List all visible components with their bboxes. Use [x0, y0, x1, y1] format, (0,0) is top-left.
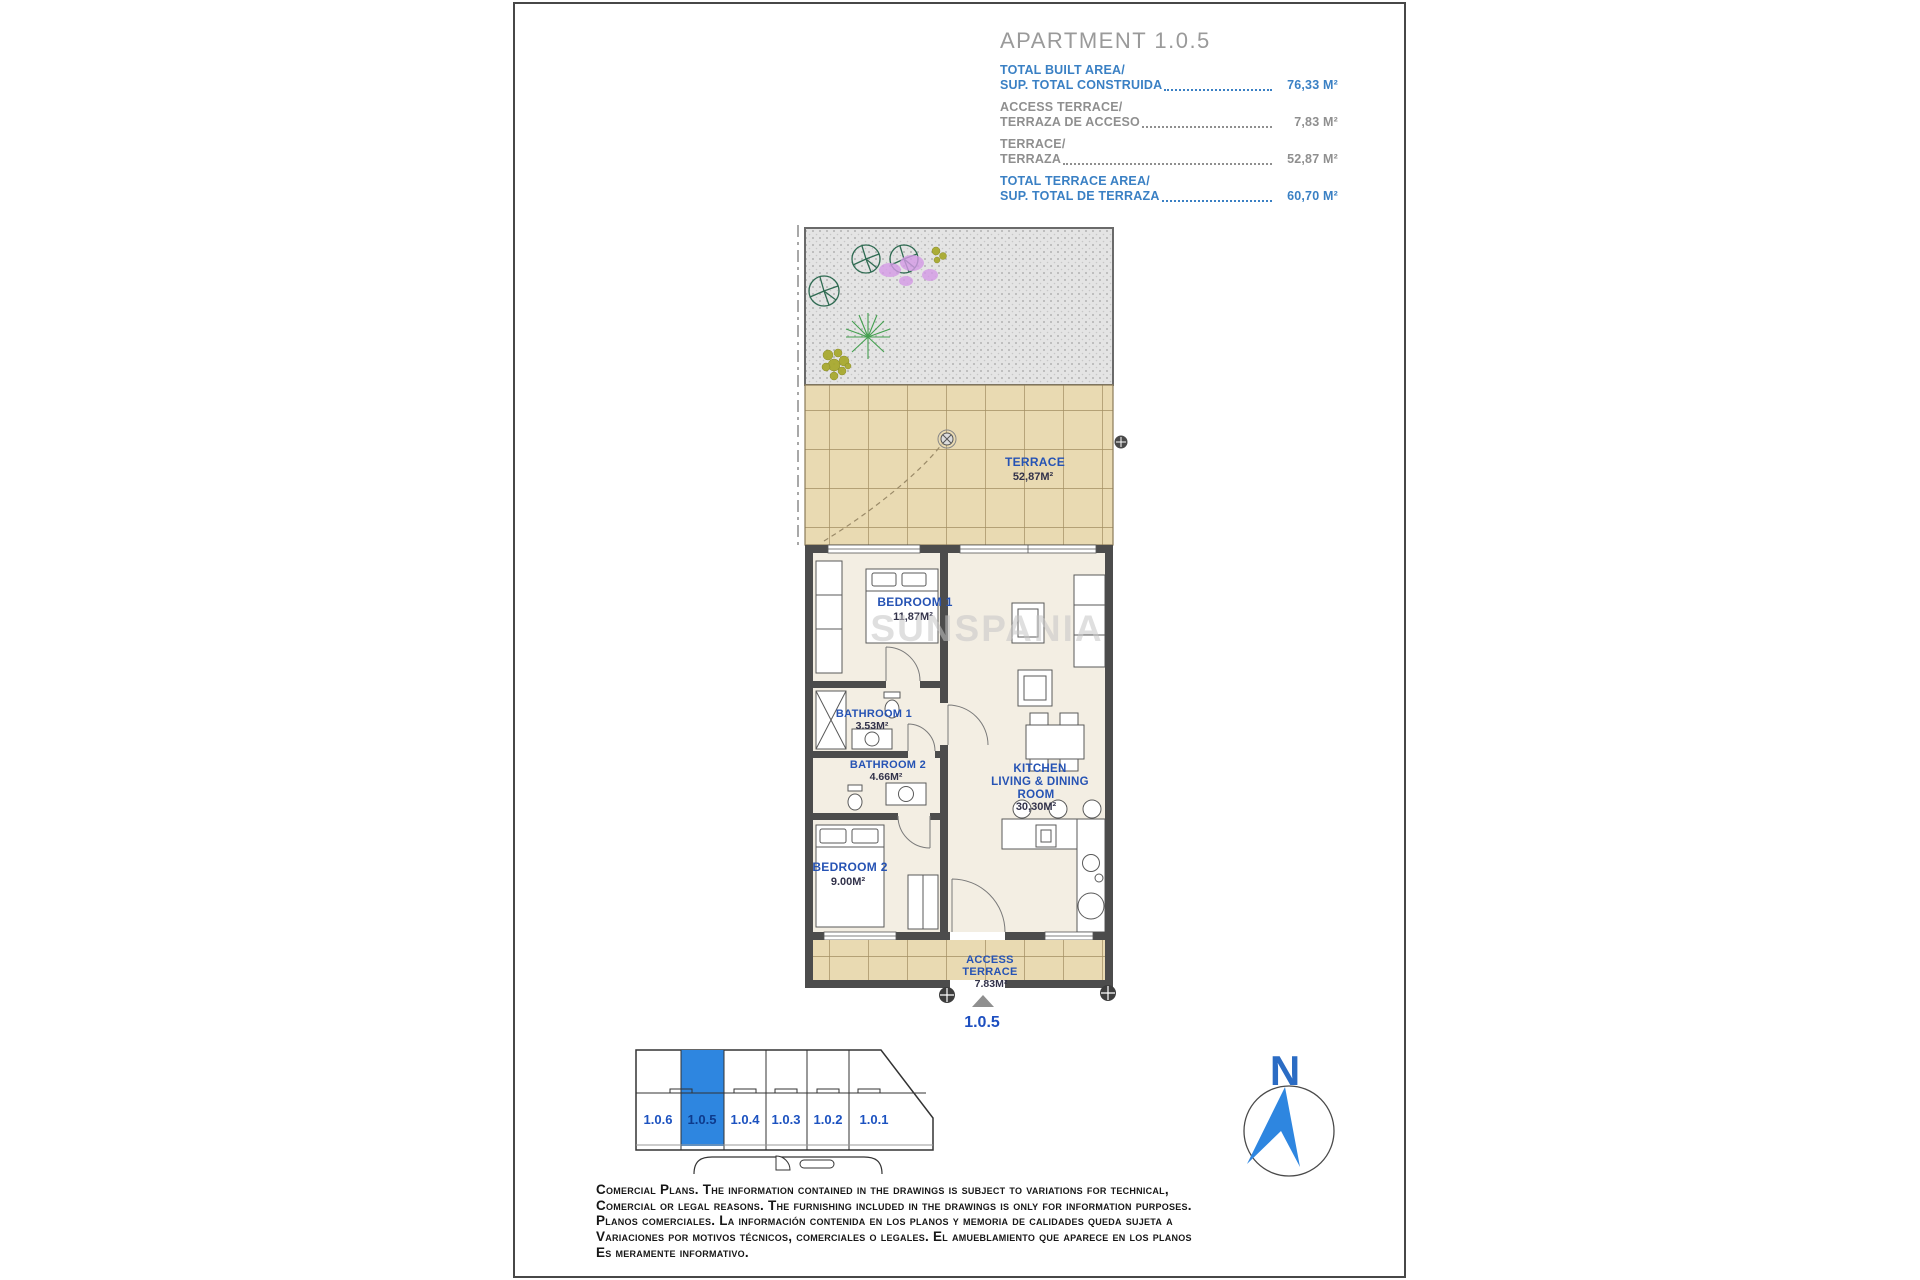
room-area-terrace: 52,87M²	[1013, 471, 1054, 483]
page-title: APARTMENT 1.0.5	[1000, 28, 1338, 54]
dotted-leader	[1063, 163, 1272, 165]
room-label-access-1: ACCESS	[966, 954, 1014, 966]
area-label-en: TOTAL BUILT AREA/	[1000, 63, 1338, 78]
closet	[908, 875, 938, 929]
room-area-access: 7.83M²	[975, 978, 1008, 990]
unit-label: 1.0.4	[731, 1112, 761, 1127]
room-label-access-2: TERRACE	[962, 966, 1017, 978]
entrance-door	[776, 1156, 790, 1170]
area-label-en: TOTAL TERRACE AREA/	[1000, 174, 1338, 189]
sink-vanity	[852, 729, 892, 749]
room-area-bathroom1: 3.53M²	[856, 720, 889, 732]
room-label-kitchen-3: ROOM	[1018, 789, 1055, 801]
room-label-kitchen-1: KITCHEN	[1013, 763, 1066, 775]
area-value: 60,70 M²	[1276, 189, 1338, 204]
area-row-total-built: TOTAL BUILT AREA/ SUP. TOTAL CONSTRUIDA …	[1000, 63, 1338, 93]
drain-icon	[1100, 985, 1116, 1001]
toilet	[848, 785, 862, 810]
unit-marker-arrow	[972, 995, 994, 1007]
area-value: 52,87 M²	[1276, 152, 1338, 167]
area-row-terrace: TERRACE/ TERRAZA 52,87 M²	[1000, 137, 1338, 167]
garden-area	[805, 228, 1113, 385]
north-label: N	[1270, 1047, 1300, 1094]
highlighted-unit	[681, 1050, 724, 1146]
apartment-header: APARTMENT 1.0.5 TOTAL BUILT AREA/ SUP. T…	[1000, 28, 1338, 211]
window	[824, 932, 896, 940]
armchair	[1012, 603, 1044, 643]
window	[1045, 932, 1093, 940]
disclaimer-line: Es meramente informativo.	[596, 1245, 1192, 1261]
terrace-area: TERRACE 52,87M²	[805, 385, 1128, 545]
area-label-es: SUP. TOTAL DE TERRAZA	[1000, 189, 1160, 204]
room-label-bedroom1: BEDROOM 1	[877, 595, 952, 609]
area-label-es: TERRAZA DE ACCESO	[1000, 115, 1140, 130]
unit-label: 1.0.6	[644, 1112, 673, 1127]
disclaimer: Comercial Plans. The information contain…	[596, 1182, 1192, 1261]
window	[960, 545, 1096, 553]
disclaimer-line: Comercial Plans. The information contain…	[596, 1182, 1192, 1198]
entrance-step	[800, 1160, 834, 1168]
key-plan: 1.0.6 1.0.5 1.0.4 1.0.3 1.0.2 1.0.1	[628, 1042, 963, 1184]
room-label-kitchen-2: LIVING & DINING	[991, 776, 1089, 788]
unit-label: 1.0.2	[814, 1112, 843, 1127]
unit-label: 1.0.1	[860, 1112, 889, 1127]
area-value: 76,33 M²	[1276, 78, 1338, 93]
area-row-total-terrace: TOTAL TERRACE AREA/ SUP. TOTAL DE TERRAZ…	[1000, 174, 1338, 204]
window	[828, 545, 920, 553]
drain-icon	[938, 430, 956, 448]
room-area-kitchen: 30,30M²	[1016, 801, 1057, 813]
area-label-es: TERRAZA	[1000, 152, 1061, 167]
room-label-bathroom1: BATHROOM 1	[836, 708, 912, 720]
area-label-en: ACCESS TERRACE/	[1000, 100, 1338, 115]
room-label-bathroom2: BATHROOM 2	[850, 759, 926, 771]
unit-label-highlighted: 1.0.5	[688, 1112, 717, 1127]
wardrobe	[816, 561, 842, 673]
room-area-bedroom1: 11,87M²	[893, 611, 933, 623]
unit-label: 1.0.3	[772, 1112, 801, 1127]
dotted-leader	[1162, 200, 1272, 202]
sink-vanity	[886, 783, 926, 805]
north-compass: N	[1222, 1043, 1362, 1188]
room-label-terrace: TERRACE	[1005, 455, 1065, 469]
dotted-leader	[1164, 89, 1272, 91]
access-terrace-area: ACCESS TERRACE 7.83M²	[805, 940, 1116, 1003]
north-arrow-icon	[1247, 1087, 1300, 1167]
sofa	[1074, 575, 1105, 667]
shower	[816, 691, 846, 749]
drain-icon	[939, 987, 955, 1003]
disclaimer-line: Planos comerciales. La información conte…	[596, 1213, 1192, 1229]
unit-marker-label: 1.0.5	[964, 1014, 1000, 1031]
disclaimer-line: Variaciones por motivos técnicos, comerc…	[596, 1229, 1192, 1245]
room-area-bedroom2: 9.00M²	[831, 876, 866, 888]
room-area-bathroom2: 4.66M²	[870, 771, 903, 783]
area-value: 7,83 M²	[1276, 115, 1338, 130]
drain-icon	[1115, 436, 1128, 449]
disclaimer-line: Comercial or legal reasons. The furnishi…	[596, 1198, 1192, 1214]
room-label-bedroom2: BEDROOM 2	[812, 860, 887, 874]
area-label-es: SUP. TOTAL CONSTRUIDA	[1000, 78, 1162, 93]
coffee-table	[1018, 670, 1052, 706]
area-label-en: TERRACE/	[1000, 137, 1338, 152]
area-row-access-terrace: ACCESS TERRACE/ TERRAZA DE ACCESO 7,83 M…	[1000, 100, 1338, 130]
dotted-leader	[1142, 126, 1272, 128]
floor-plan: TERRACE 52,87M²	[790, 215, 1135, 1050]
